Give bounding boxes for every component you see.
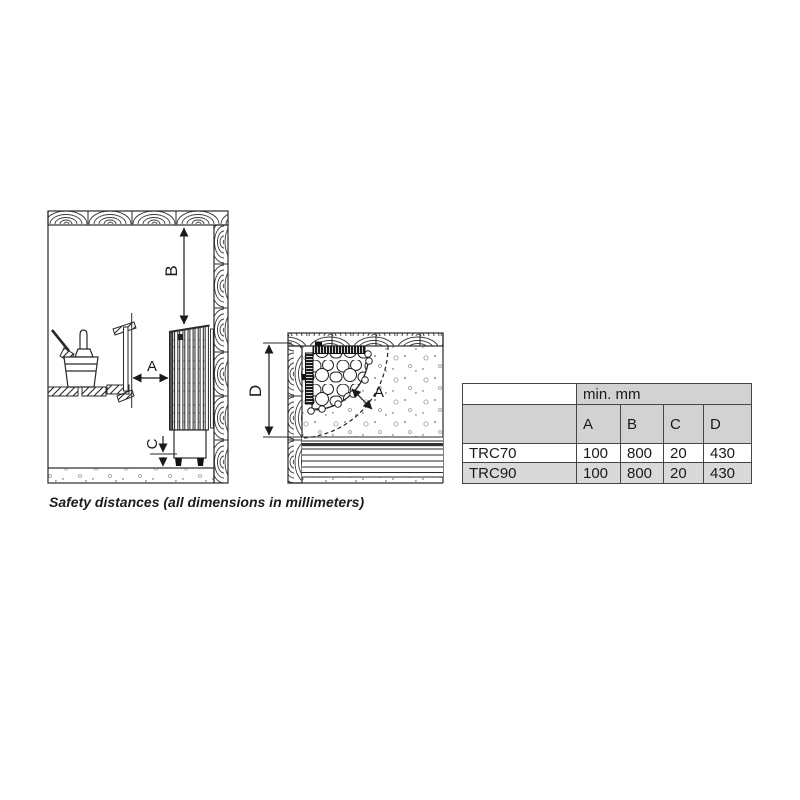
cell-b: 800 [621,444,664,463]
dimension-label-d: D [246,385,265,397]
cell-c: 20 [664,463,704,484]
heater-side-view [169,326,213,467]
heater-wall-bracket [211,329,214,428]
cell-c: 20 [664,444,704,463]
dimension-a-side: A [133,358,168,378]
cell-a: 100 [577,444,621,463]
cell-d: 430 [704,444,752,463]
dimension-label-a-top: A [374,384,384,401]
dimension-b: B [162,228,184,324]
cell-model: TRC90 [463,463,577,484]
table-col-d: D [704,405,752,444]
table-ghost-cell [463,384,577,405]
top-view-floor-strip [302,477,443,483]
table-model-header [463,405,577,444]
heater-slats [170,326,209,430]
dimension-label-a-side: A [147,358,157,375]
heater-frame-left [306,353,314,404]
heater-control-knob [178,334,183,340]
table-unit-row: min. mm [463,384,752,405]
heater-mount-bracket [302,374,307,380]
heater-mount-bracket [315,342,322,347]
bucket [64,330,98,387]
bench-planks [302,437,443,477]
cell-model: TRC70 [463,444,577,463]
spec-table-wrap: min. mm A B C D TRC70 100 800 20 430 TRC… [462,383,752,484]
table-unit-header: min. mm [577,384,752,405]
table-col-b: B [621,405,664,444]
cell-d: 430 [704,463,752,484]
cell-a: 100 [577,463,621,484]
top-view-left-wall [288,346,302,483]
table-col-c: C [664,405,704,444]
dimension-c: C [144,436,177,466]
dimension-label-c: C [144,438,161,449]
top-view-diagram: D A [246,333,443,483]
table-row-trc90: TRC90 100 800 20 430 [463,463,752,484]
dimension-label-b: B [162,265,181,276]
heater-frame-top [313,346,365,354]
heater-foot [175,458,182,466]
caption: Safety distances (all dimensions in mill… [49,494,364,510]
manual-page: B A C [0,0,800,800]
spec-table: min. mm A B C D TRC70 100 800 20 430 TRC… [462,383,752,484]
side-view-right-wall [214,225,228,483]
heater-base [174,430,206,458]
cell-b: 800 [621,463,664,484]
heater-foot [197,458,204,466]
table-header-row: A B C D [463,405,752,444]
table-col-a: A [577,405,621,444]
side-view-floor [48,468,214,483]
side-view-ceiling-wall [48,211,228,225]
side-view-diagram: B A C [48,211,228,483]
top-view-top-wall [288,333,443,346]
table-row-trc70: TRC70 100 800 20 430 [463,444,752,463]
